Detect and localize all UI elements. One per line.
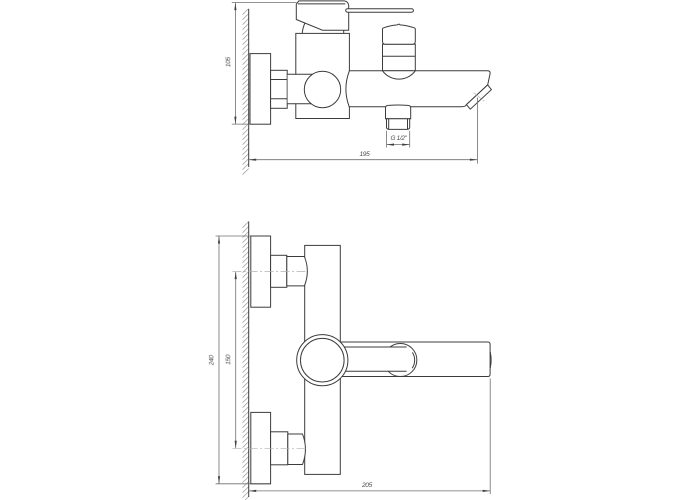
svg-text:G 1/2": G 1/2": [390, 135, 407, 142]
svg-text:105: 105: [225, 57, 232, 68]
svg-text:240: 240: [208, 355, 215, 367]
svg-text:150: 150: [225, 354, 232, 365]
svg-text:195: 195: [359, 151, 370, 158]
svg-text:205: 205: [361, 482, 373, 489]
